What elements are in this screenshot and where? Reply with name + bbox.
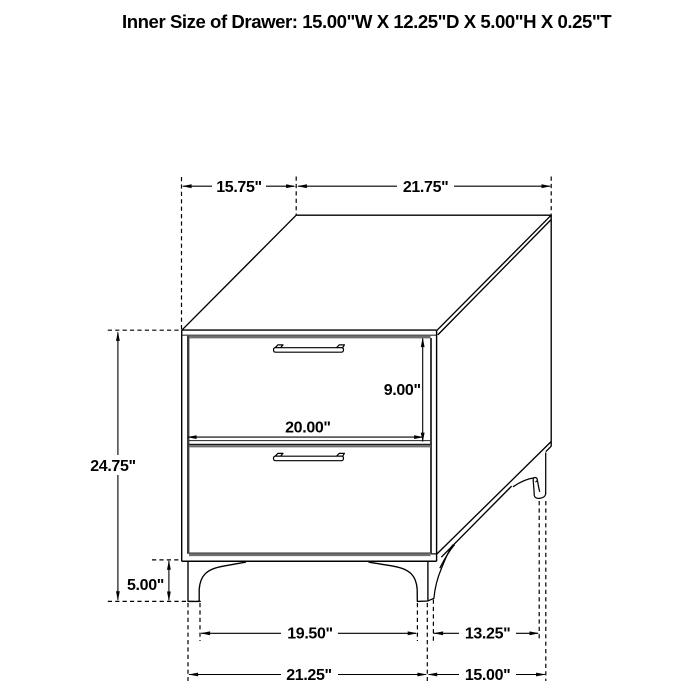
- svg-text:5.00": 5.00": [127, 577, 164, 594]
- svg-text:20.00": 20.00": [285, 419, 331, 436]
- svg-text:9.00": 9.00": [384, 382, 421, 399]
- svg-text:24.75": 24.75": [90, 458, 136, 475]
- svg-text:21.25": 21.25": [286, 667, 332, 684]
- svg-text:15.75": 15.75": [216, 179, 262, 196]
- svg-text:19.50": 19.50": [287, 625, 333, 642]
- svg-text:Inner Size of Drawer: 15.00"W: Inner Size of Drawer: 15.00"W X 12.25"D …: [122, 11, 612, 32]
- svg-text:21.75": 21.75": [403, 179, 449, 196]
- svg-text:15.00": 15.00": [465, 667, 511, 684]
- svg-text:13.25": 13.25": [465, 625, 511, 642]
